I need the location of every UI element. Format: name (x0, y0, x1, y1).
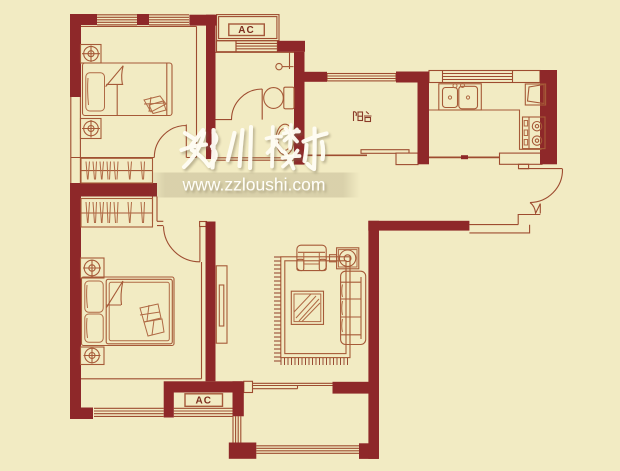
svg-text:www.zzloushi.com: www.zzloushi.com (182, 175, 326, 195)
svg-text:AC: AC (238, 25, 254, 36)
svg-text:AC: AC (195, 396, 211, 407)
